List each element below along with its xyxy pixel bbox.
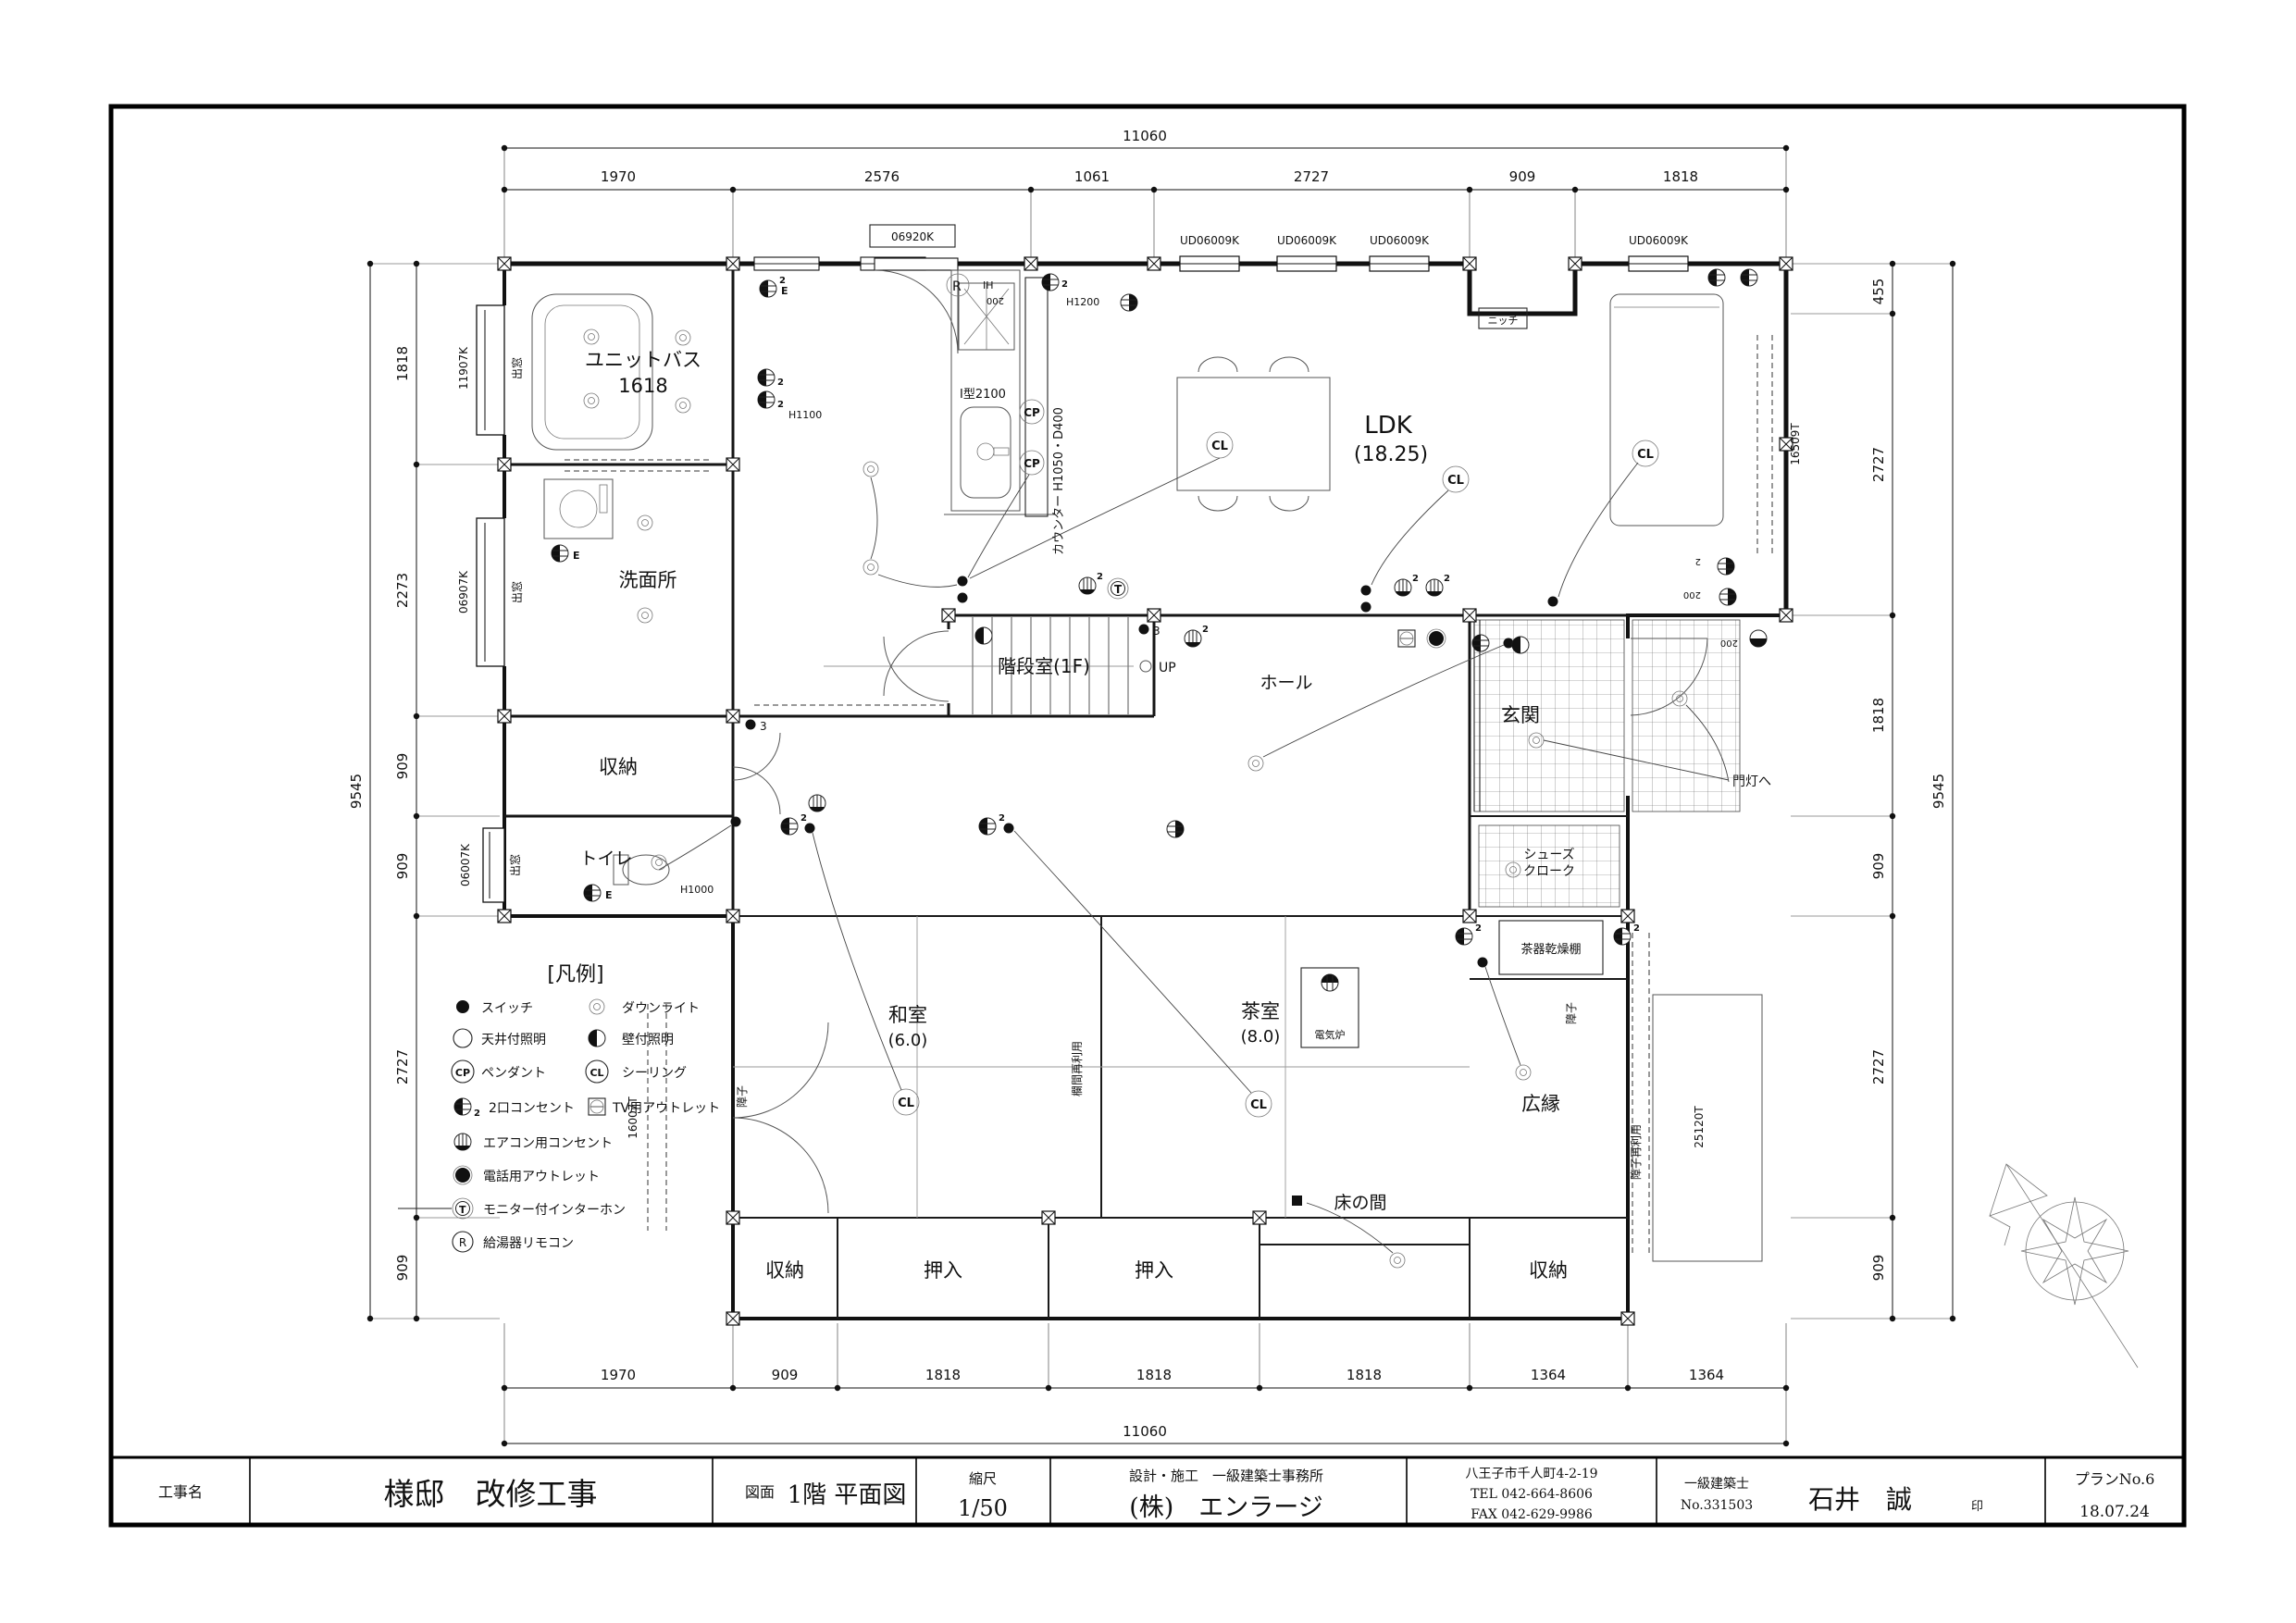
titleblock-owner: 様邸 改修工事 xyxy=(384,1476,598,1512)
room-shuno-right: 収納 xyxy=(1529,1259,1568,1282)
dim-right-2: 2727 xyxy=(1870,447,1887,482)
label-niche: ニッチ xyxy=(1488,315,1519,327)
label-win-11907K: 11907K xyxy=(457,346,470,390)
label-200-wall: 200 xyxy=(1720,638,1738,648)
label-h1000: H1000 xyxy=(680,884,714,896)
pendant-letter: CP xyxy=(455,1067,470,1079)
room-hall: ホール xyxy=(1260,673,1312,693)
room-oshiire-1: 押入 xyxy=(924,1259,962,1282)
legend-outlet2-sub: 2 xyxy=(474,1109,480,1119)
room-shoes-2: クローク xyxy=(1523,864,1575,879)
dim-right-total: 9545 xyxy=(1930,774,1947,809)
stair-up: UP xyxy=(1159,661,1176,675)
label-kitchen-type: I型2100 xyxy=(960,388,1006,402)
label-e-2: E xyxy=(573,550,580,562)
svg-text:2: 2 xyxy=(1412,574,1419,584)
phone-outlet-icon xyxy=(453,1166,472,1184)
titleblock-date: 18.07.24 xyxy=(2079,1503,2150,1521)
svg-text:2: 2 xyxy=(779,276,786,286)
legend-item-label: TV用アウトレット xyxy=(612,1101,720,1116)
dim-bottom-7: 1364 xyxy=(1689,1367,1724,1383)
titleblock-zumen: 1階 平面図 xyxy=(788,1481,907,1509)
svg-text:2: 2 xyxy=(777,378,784,388)
dim-bottom-total: 11060 xyxy=(1123,1423,1167,1440)
titleblock-design-label: 設計・施工 一級建築士事務所 xyxy=(1129,1468,1323,1484)
switch-3-label: 3 xyxy=(760,720,767,733)
room-tokonoma: 床の間 xyxy=(1334,1193,1386,1213)
titleblock-koji-label: 工事名 xyxy=(158,1483,203,1501)
cl-letter: CL xyxy=(590,1067,603,1079)
svg-text:2: 2 xyxy=(999,813,1005,824)
label-win-06907K: 06907K xyxy=(457,570,470,613)
label-demado-3: 出窓 xyxy=(508,854,522,876)
legend-title: [凡例] xyxy=(547,963,603,986)
room-chashitsu: 茶室 xyxy=(1241,1000,1280,1022)
label-ih: IH xyxy=(983,279,994,291)
tokonoma-switch-icon xyxy=(1292,1196,1302,1206)
dim-top-5: 909 xyxy=(1509,168,1536,185)
dim-top-3: 1061 xyxy=(1074,168,1110,185)
dim-bottom-5: 1818 xyxy=(1347,1367,1382,1383)
dim-left-total: 9545 xyxy=(348,774,365,809)
tv-outlet-icon xyxy=(589,1098,605,1115)
cl-label: CL xyxy=(1447,474,1464,488)
room-shuno-bottom: 収納 xyxy=(765,1259,804,1282)
dim-bottom-2: 909 xyxy=(772,1367,799,1383)
legend-item-label: モニター付インターホン xyxy=(483,1203,626,1218)
titleblock-fax: FAX 042-629-9986 xyxy=(1471,1507,1593,1522)
label-demado-1: 出窓 xyxy=(510,357,524,379)
label-win-ud-4: UD06009K xyxy=(1629,234,1689,247)
cp-label: CP xyxy=(1024,457,1040,470)
dim-left-2: 2273 xyxy=(394,573,411,608)
titleblock-company: (株) エンラージ xyxy=(1129,1493,1323,1522)
dim-right-6: 909 xyxy=(1870,1255,1887,1282)
cl-label: CL xyxy=(898,1096,914,1110)
label-h1100: H1100 xyxy=(788,409,822,421)
legend-item-label: ダウンライト xyxy=(622,1001,700,1016)
switch-3-label: 3 xyxy=(1153,625,1160,638)
svg-text:2: 2 xyxy=(777,400,784,410)
titleblock-plan-no: プランNo.6 xyxy=(2075,1470,2155,1488)
svg-text:2: 2 xyxy=(1061,279,1068,290)
dim-bottom-1: 1970 xyxy=(601,1367,636,1383)
drawing-page: 11060 1970 2576 1061 2727 909 1818 1970 … xyxy=(0,0,2296,1623)
cl-label: CL xyxy=(1250,1098,1267,1112)
legend-item-label: シーリング xyxy=(622,1066,687,1081)
svg-text:2: 2 xyxy=(1202,625,1209,635)
dim-right-4: 909 xyxy=(1870,853,1887,880)
phone-outlet-icon xyxy=(1427,629,1446,648)
dim-top-2: 2576 xyxy=(864,168,900,185)
legend-item-label: エアコン用コンセント xyxy=(483,1136,613,1151)
remote-letter: R xyxy=(459,1236,466,1249)
label-ranma: 欄間再利用 xyxy=(1070,1041,1084,1096)
titleblock-seal: 印 xyxy=(1971,1500,1983,1514)
room-bath: ユニットバス xyxy=(585,349,701,371)
room-chashitsu-size: (8.0) xyxy=(1241,1027,1281,1047)
room-oshiire-2: 押入 xyxy=(1135,1259,1173,1282)
label-win-16509T: 16509T xyxy=(1789,423,1802,465)
svg-text:2: 2 xyxy=(1475,923,1482,934)
label-win-25120T: 25120T xyxy=(1693,1106,1706,1148)
dim-left-6: 909 xyxy=(394,1255,411,1282)
label-montou: 門灯へ xyxy=(1732,774,1771,789)
remote-letter: R xyxy=(952,279,962,294)
dim-bottom-6: 1364 xyxy=(1531,1367,1566,1383)
label-demado-2: 出窓 xyxy=(510,581,524,603)
dim-top-4: 2727 xyxy=(1294,168,1329,185)
room-toilet: トイレ xyxy=(579,849,632,869)
room-shoes-1: シューズ xyxy=(1523,848,1574,862)
room-stair: 階段室(1F) xyxy=(998,655,1090,677)
label-shoji-left: 障子 xyxy=(735,1085,749,1108)
titleblock-address: 八王子市千人町4-2-19 xyxy=(1465,1466,1597,1481)
label-200-kitchen: 200 xyxy=(987,295,1004,305)
room-washitsu: 和室 xyxy=(888,1004,927,1026)
outlet2-icon xyxy=(454,1098,471,1115)
label-win-ud-2: UD06009K xyxy=(1277,234,1337,247)
svg-text:2: 2 xyxy=(1444,574,1450,584)
dim-left-3: 909 xyxy=(394,753,411,780)
label-door-06920K: 06920K xyxy=(891,230,935,243)
room-bath-size: 1618 xyxy=(618,375,667,397)
room-hiroen: 広縁 xyxy=(1521,1093,1560,1115)
dim-left-4: 909 xyxy=(394,853,411,880)
label-e-1: E xyxy=(781,285,788,297)
room-genkan: 玄関 xyxy=(1501,704,1540,726)
dim-bottom-4: 1818 xyxy=(1136,1367,1172,1383)
titleblock-arch-name: 石井 誠 xyxy=(1808,1484,1912,1515)
titleblock-scale-label: 縮尺 xyxy=(969,1470,997,1487)
room-washitsu-size: (6.0) xyxy=(888,1031,928,1050)
floor-plan-svg: 11060 1970 2576 1061 2727 909 1818 1970 … xyxy=(0,0,2296,1623)
label-h1200: H1200 xyxy=(1066,296,1099,308)
legend-item-label: 2口コンセント xyxy=(489,1101,575,1116)
wall-light-icon xyxy=(589,1030,605,1047)
room-ldk-size: (18.25) xyxy=(1354,443,1428,466)
label-e-3: E xyxy=(605,889,613,901)
titleblock-zumen-label: 図面 xyxy=(745,1483,775,1501)
dim-left-1: 1818 xyxy=(394,346,411,381)
label-win-ud-3: UD06009K xyxy=(1370,234,1430,247)
tv-outlet-icon xyxy=(1398,630,1415,647)
legend-item-label: 天井付照明 xyxy=(481,1033,546,1047)
legend-item-label: 給湯器リモコン xyxy=(483,1235,574,1251)
titleblock-arch-no: No.331503 xyxy=(1681,1498,1753,1513)
legend-item-label: スイッチ xyxy=(481,1001,533,1016)
sheet-frame xyxy=(111,106,2184,1525)
legend-item-label: 壁付照明 xyxy=(622,1033,674,1047)
label-win-ud-1: UD06009K xyxy=(1180,234,1240,247)
room-wash: 洗面所 xyxy=(619,569,677,591)
dim-left-5: 2727 xyxy=(394,1049,411,1084)
cl-label: CL xyxy=(1211,440,1228,453)
dim-right-3: 1818 xyxy=(1870,698,1887,733)
cl-label: CL xyxy=(1637,448,1654,462)
legend-item-label: 電話用アウトレット xyxy=(483,1169,600,1184)
label-shoji-reuse: 障子再利用 xyxy=(1629,1124,1643,1180)
cp-label: CP xyxy=(1024,406,1040,419)
titleblock-tel: TEL 042-664-8606 xyxy=(1471,1487,1593,1502)
dim-right-1: 455 xyxy=(1870,279,1887,305)
intercom-letter: T xyxy=(459,1204,466,1216)
dim-top-1: 1970 xyxy=(601,168,636,185)
label-200-b: 200 xyxy=(1683,589,1701,600)
room-ldk: LDK xyxy=(1364,412,1413,440)
svg-text:2: 2 xyxy=(800,813,807,824)
room-shuno-left: 収納 xyxy=(599,756,638,778)
label-denkiro: 電気炉 xyxy=(1315,1028,1346,1041)
label-counter: カウンター H1050・D400 xyxy=(1052,407,1066,555)
titleblock-arch-title: 一級建築士 xyxy=(1684,1477,1749,1492)
switch-icon xyxy=(456,1000,469,1013)
titleblock-scale: 1/50 xyxy=(958,1495,1008,1521)
legend-item-label: ペンダント xyxy=(481,1066,546,1081)
label-2-a: 2 xyxy=(1695,556,1701,566)
label-shoji-right: 障子 xyxy=(1564,1002,1578,1024)
svg-text:2: 2 xyxy=(1633,923,1640,934)
dim-top-6: 1818 xyxy=(1663,168,1698,185)
aircon-outlet-icon xyxy=(454,1134,471,1150)
intercom-letter: T xyxy=(1114,583,1123,596)
dim-right-5: 2727 xyxy=(1870,1049,1887,1084)
dim-bottom-3: 1818 xyxy=(925,1367,961,1383)
svg-text:2: 2 xyxy=(1097,572,1103,582)
label-win-06007K: 06007K xyxy=(459,843,472,886)
dim-top-total: 11060 xyxy=(1123,128,1167,144)
label-chaki: 茶器乾燥棚 xyxy=(1520,942,1581,957)
